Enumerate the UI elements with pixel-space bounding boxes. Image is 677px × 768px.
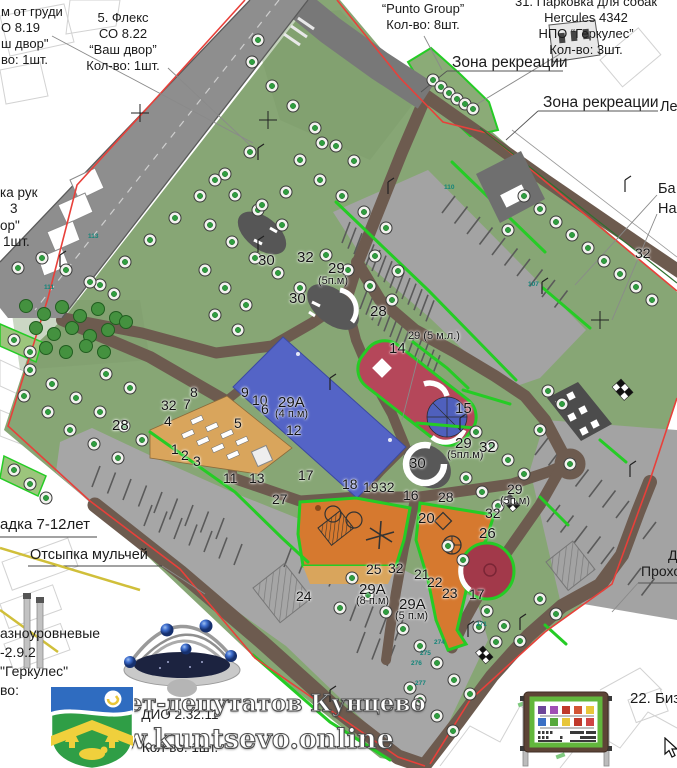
site-plan-map [0, 0, 677, 768]
tree [118, 420, 130, 432]
tree [194, 190, 206, 202]
tree [100, 368, 112, 380]
tree [646, 294, 658, 306]
tree [481, 605, 493, 617]
tree [534, 203, 546, 215]
tree [457, 554, 469, 566]
tree [272, 267, 284, 279]
tree [614, 268, 626, 280]
tree [630, 281, 642, 293]
tree [566, 229, 578, 241]
tree [124, 382, 136, 394]
tree [64, 424, 76, 436]
site-plan-canvas: м от груди О 8.19 ш двор" во: 1шт. 5. Фл… [0, 0, 677, 768]
tree [309, 122, 321, 134]
tree [550, 216, 562, 228]
tree [24, 346, 36, 358]
tree [542, 385, 554, 397]
tree [46, 378, 58, 390]
tree [346, 572, 358, 584]
bush [80, 340, 93, 353]
tree [12, 262, 24, 274]
tree [316, 137, 328, 149]
playground-left [298, 498, 410, 584]
tree [70, 392, 82, 404]
tree [473, 621, 485, 633]
tree [40, 492, 52, 504]
tree [294, 282, 306, 294]
tree [94, 406, 106, 418]
tree [287, 100, 299, 112]
tree [334, 602, 346, 614]
tree [280, 186, 292, 198]
tree [36, 252, 48, 264]
kuntsevo-coat-of-arms [47, 684, 137, 768]
mouse-cursor-icon [663, 737, 677, 759]
tree [502, 454, 514, 466]
tree [431, 657, 443, 669]
tree [330, 140, 342, 152]
bush [40, 342, 53, 355]
bush [98, 346, 111, 359]
tree [518, 190, 530, 202]
bush [102, 324, 115, 337]
tree [556, 398, 568, 410]
tree [476, 486, 488, 498]
tree [119, 256, 131, 268]
tree [414, 640, 426, 652]
tree [470, 426, 482, 438]
tree [42, 406, 54, 418]
tree [598, 255, 610, 267]
tree [380, 606, 392, 618]
tree [348, 155, 360, 167]
tree [232, 324, 244, 336]
tree [24, 478, 36, 490]
bush [92, 303, 105, 316]
tree [550, 608, 562, 620]
bush [56, 301, 69, 314]
tree [219, 282, 231, 294]
tree [249, 252, 261, 264]
tree [564, 458, 576, 470]
tree [18, 390, 30, 402]
tree [320, 249, 332, 261]
bush [48, 328, 61, 341]
tree [397, 623, 409, 635]
tree [229, 189, 241, 201]
tree [514, 635, 526, 647]
tree [8, 334, 20, 346]
tree [467, 103, 479, 115]
tree [256, 199, 268, 211]
tree [199, 264, 211, 276]
tree [294, 154, 306, 166]
tree [24, 364, 36, 376]
tree [442, 540, 454, 552]
tree [276, 219, 288, 231]
tree [226, 236, 238, 248]
tree [386, 294, 398, 306]
tree [252, 34, 264, 46]
bush [66, 322, 79, 335]
tree [502, 224, 514, 236]
tree [534, 424, 546, 436]
busy-board-image [510, 684, 622, 768]
tree [88, 438, 100, 450]
dark-red-area [460, 543, 514, 599]
tree [518, 468, 530, 480]
tree [358, 206, 370, 218]
bush [20, 300, 33, 313]
tree [204, 219, 216, 231]
tree [169, 212, 181, 224]
tree [392, 265, 404, 277]
tree [490, 636, 502, 648]
tree [534, 593, 546, 605]
tree [266, 80, 278, 92]
tree [582, 242, 594, 254]
tree [209, 309, 221, 321]
tree [369, 250, 381, 262]
tree [112, 452, 124, 464]
tree [362, 589, 374, 601]
tree [136, 434, 148, 446]
tree [464, 688, 476, 700]
tree [246, 56, 258, 68]
tree [144, 234, 156, 246]
tree [498, 620, 510, 632]
tree [8, 464, 20, 476]
tree [364, 280, 376, 292]
tree [314, 174, 326, 186]
bush [30, 322, 43, 335]
tree [244, 146, 256, 158]
tree [342, 264, 354, 276]
tree [336, 190, 348, 202]
bush [60, 346, 73, 359]
bush [38, 308, 51, 321]
tree [209, 174, 221, 186]
tree [380, 222, 392, 234]
bush [120, 316, 133, 329]
tree [431, 710, 443, 722]
bush [74, 310, 87, 323]
tree [240, 299, 252, 311]
tree [492, 500, 504, 512]
tree [460, 472, 472, 484]
tree [108, 288, 120, 300]
tree [60, 264, 72, 276]
tree [486, 440, 498, 452]
tree [447, 725, 459, 737]
tree [448, 674, 460, 686]
tree [84, 276, 96, 288]
